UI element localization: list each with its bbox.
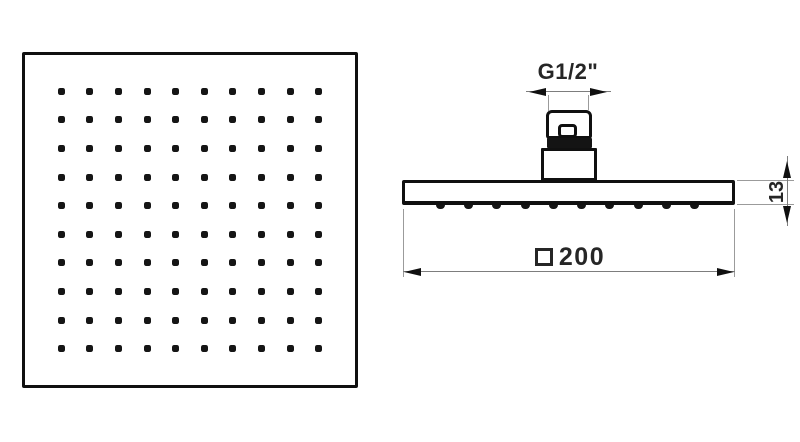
spray-dot [172, 288, 179, 295]
spray-dot [258, 174, 265, 181]
spray-dot [229, 116, 236, 123]
spray-dot [115, 317, 122, 324]
spray-dot [58, 345, 65, 352]
spray-dot [86, 174, 93, 181]
spray-dot [258, 288, 265, 295]
spray-dot [86, 288, 93, 295]
spray-dot [86, 317, 93, 324]
thread-extension-line-left [548, 95, 549, 111]
spray-dot [229, 174, 236, 181]
spray-dot [115, 259, 122, 266]
spray-dot [315, 145, 322, 152]
spray-dot [58, 259, 65, 266]
spray-dot [58, 116, 65, 123]
spray-dot [229, 145, 236, 152]
spray-dot [115, 231, 122, 238]
spray-dot [287, 202, 294, 209]
spray-dot [287, 231, 294, 238]
width-extension-line-right [734, 209, 735, 277]
spray-dot [58, 88, 65, 95]
spray-dot [315, 259, 322, 266]
spray-dot [258, 259, 265, 266]
spray-dot [172, 145, 179, 152]
spray-dot [86, 259, 93, 266]
spray-dot [58, 317, 65, 324]
spray-dot [86, 116, 93, 123]
spray-dot [86, 202, 93, 209]
spray-dot [172, 174, 179, 181]
spray-dot [258, 345, 265, 352]
spray-dot [172, 259, 179, 266]
spray-dot [229, 231, 236, 238]
spray-dot [258, 202, 265, 209]
spray-dot [115, 145, 122, 152]
spray-dot [315, 174, 322, 181]
spray-dot [201, 231, 208, 238]
spray-dot [172, 116, 179, 123]
spray-dot [287, 174, 294, 181]
spray-dot [115, 345, 122, 352]
spray-dot [229, 259, 236, 266]
spray-dot [144, 88, 151, 95]
spray-dot [315, 288, 322, 295]
width-dimension-value: 200 [559, 243, 605, 272]
spray-dot [201, 345, 208, 352]
spray-dot [172, 231, 179, 238]
spray-dot [172, 345, 179, 352]
thread-arrow-left-icon [529, 88, 546, 96]
spray-dot [86, 231, 93, 238]
spray-dot [144, 288, 151, 295]
spray-dot [58, 202, 65, 209]
spray-dot [201, 288, 208, 295]
spray-dot [229, 345, 236, 352]
spray-dot [58, 288, 65, 295]
thread-extension-line-right [588, 95, 589, 111]
spray-dot [115, 202, 122, 209]
spray-dot [287, 116, 294, 123]
spray-dot [201, 116, 208, 123]
spray-dot [287, 345, 294, 352]
spray-dot [172, 202, 179, 209]
spray-dot [144, 116, 151, 123]
spray-dot [229, 317, 236, 324]
spray-dot [201, 88, 208, 95]
spray-dot [315, 88, 322, 95]
spray-dot [115, 116, 122, 123]
spray-dot [258, 145, 265, 152]
width-arrow-right-icon [717, 268, 734, 276]
spray-dot [86, 145, 93, 152]
thread-dimension-label: G1/2" [518, 59, 618, 85]
spray-dot [287, 317, 294, 324]
spray-dot [201, 145, 208, 152]
width-extension-line-left [403, 209, 404, 277]
spray-dot [144, 317, 151, 324]
spray-dot [287, 288, 294, 295]
spray-dot [287, 259, 294, 266]
spray-dot [115, 174, 122, 181]
swivel-collar [547, 138, 592, 148]
diagram-canvas: G1/2" 13 200 [0, 0, 800, 442]
spray-dot [144, 259, 151, 266]
spray-dot [86, 345, 93, 352]
spray-dot [144, 345, 151, 352]
spray-dot [144, 202, 151, 209]
thickness-dimension-label: 13 [766, 172, 788, 212]
spray-dot [287, 145, 294, 152]
square-symbol-icon [535, 248, 553, 266]
spray-dot [115, 288, 122, 295]
width-arrow-left-icon [404, 268, 421, 276]
spray-dot [315, 231, 322, 238]
spray-dot [58, 231, 65, 238]
spray-dot [258, 317, 265, 324]
spray-dot [229, 288, 236, 295]
spray-dot [201, 317, 208, 324]
spray-dot [258, 88, 265, 95]
spray-dot [315, 116, 322, 123]
spray-dot [144, 231, 151, 238]
head-plate [402, 180, 735, 205]
spray-dot [115, 88, 122, 95]
spray-dot [86, 88, 93, 95]
spray-dot [229, 88, 236, 95]
width-dimension-label: 200 [495, 243, 645, 271]
spray-dot [258, 231, 265, 238]
spray-dot [229, 202, 236, 209]
spray-dot [144, 174, 151, 181]
spray-dot [201, 259, 208, 266]
spray-dot [58, 174, 65, 181]
spray-dot [201, 174, 208, 181]
spray-dot [201, 202, 208, 209]
spray-dot [287, 88, 294, 95]
swivel-joint-opening [558, 124, 577, 138]
spray-dot-grid [47, 77, 333, 363]
thread-arrow-right-icon [590, 88, 607, 96]
spray-dot [315, 345, 322, 352]
spray-dot [58, 145, 65, 152]
spray-dot [172, 88, 179, 95]
spray-dot [315, 202, 322, 209]
mounting-base [541, 148, 597, 181]
spray-dot [172, 317, 179, 324]
spray-dot [144, 145, 151, 152]
spray-dot [315, 317, 322, 324]
spray-dot [258, 116, 265, 123]
